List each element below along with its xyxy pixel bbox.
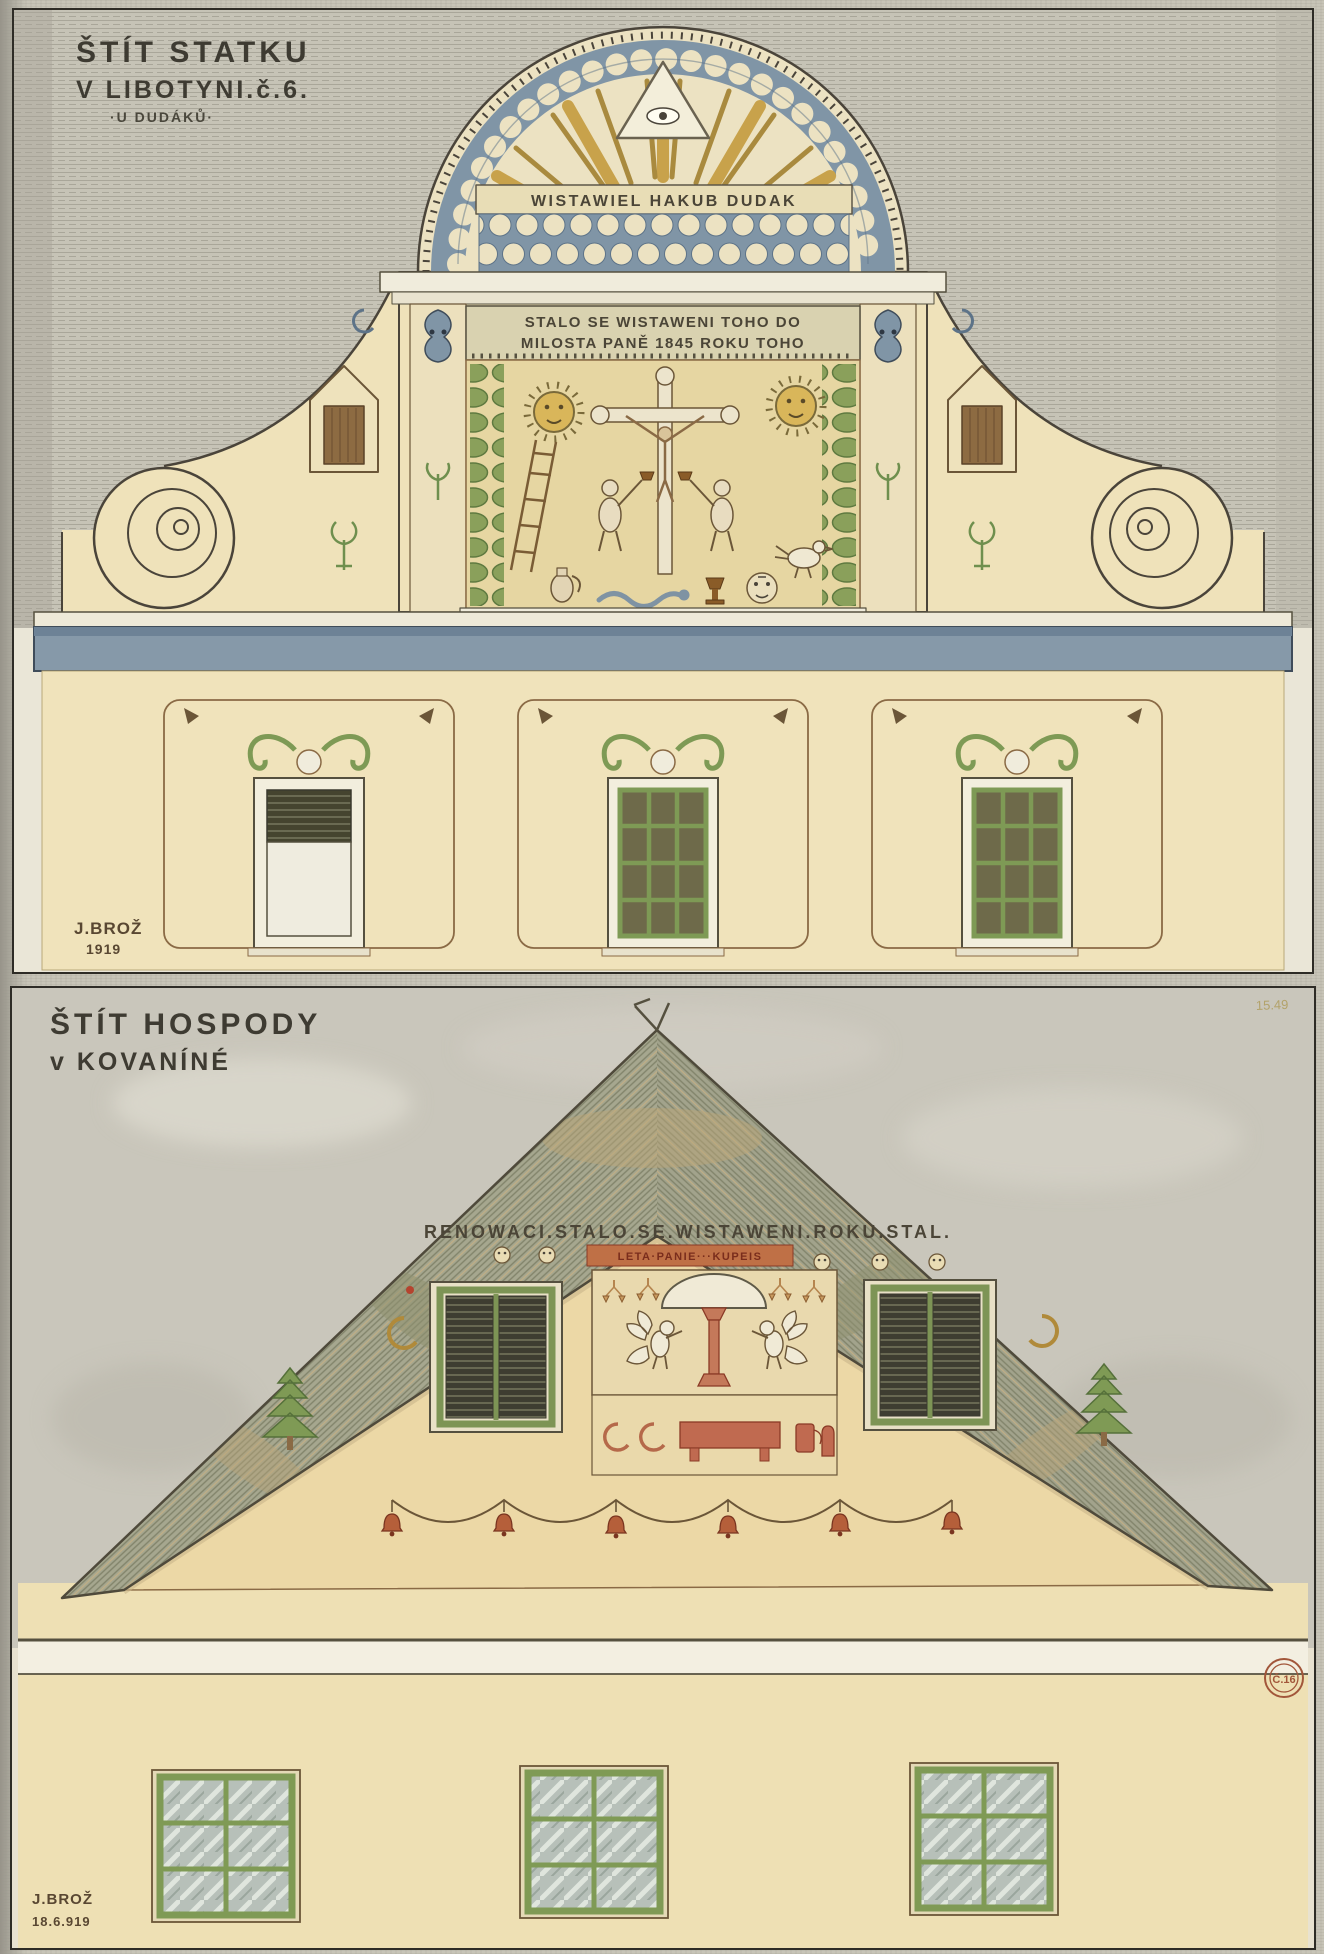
face-medallion-icon <box>747 573 777 603</box>
lower-window <box>910 1763 1058 1915</box>
left-volute-scroll <box>94 468 234 608</box>
lower-window <box>152 1770 300 1922</box>
date-inscription-band: STALO SE WISTAWENI TOHO DO MILOSTA PANĚ … <box>466 306 860 360</box>
artist-signature: J.BROŽ <box>32 1890 93 1908</box>
cornice-band <box>18 1640 1308 1674</box>
leaf-garland-column <box>822 364 856 606</box>
right-pilaster <box>860 304 916 612</box>
red-inscription: LETA·PANIE···KUPEIS <box>618 1251 763 1263</box>
left-shuttered-window <box>430 1282 562 1432</box>
right-shuttered-window <box>864 1280 996 1430</box>
caption-line-1: ŠTÍT HOSPODY <box>50 1007 321 1041</box>
farm-gable-drawing: WISTAWIEL HAKUB DUDAK <box>14 10 1312 972</box>
caption-line-2: V LIBOTYNI.č.6. <box>76 76 310 104</box>
arch-inscription: WISTAWIEL HAKUB DUDAK <box>531 193 797 210</box>
crucifixion-mural <box>466 360 860 610</box>
date-line-1: STALO SE WISTAWENI TOHO DO <box>525 314 802 331</box>
lower-window <box>520 1766 668 1918</box>
artist-signature: J.BROŽ <box>74 919 142 938</box>
caption-line-1: ŠTÍT STATKU <box>76 35 311 69</box>
left-pilaster <box>410 304 466 612</box>
date-line-2: MILOSTA PANĚ 1845 ROKU TOHO <box>521 334 805 352</box>
gable-inscription: RENOWACI.STALO.SE.WISTAWENI.ROKU.STAL. <box>424 1222 952 1242</box>
cherub-panel <box>592 1270 837 1395</box>
scanned-book-plate: WISTAWIEL HAKUB DUDAK <box>0 0 1324 1954</box>
pub-gable-drawing: RENOWACI.STALO.SE.WISTAWENI.ROKU.STAL. L… <box>12 988 1314 1948</box>
caption-line-2: v KOVANÍNÉ <box>50 1047 231 1076</box>
caption-line-3: ·U DUDÁKŮ· <box>110 107 214 125</box>
signature-year: 1919 <box>86 941 121 957</box>
red-inscription-band: LETA·PANIE···KUPEIS <box>587 1245 793 1266</box>
leaf-garland-column <box>470 364 504 606</box>
plate-farm-gable: WISTAWIEL HAKUB DUDAK <box>12 8 1314 974</box>
stamp-number: Č.16 <box>1272 1673 1295 1686</box>
chalice-icon <box>640 472 654 480</box>
corner-number: 15.49 <box>1256 997 1289 1013</box>
lower-facade <box>42 671 1284 970</box>
signature-date: 18.6.919 <box>32 1914 91 1929</box>
red-mark-icon <box>406 1286 414 1294</box>
main-cornice <box>34 612 1292 671</box>
chalice-icon <box>678 472 692 480</box>
plate-pub-gable: RENOWACI.STALO.SE.WISTAWENI.ROKU.STAL. L… <box>10 986 1316 1950</box>
right-volute-scroll <box>1092 468 1232 608</box>
tavern-frieze <box>592 1395 837 1475</box>
